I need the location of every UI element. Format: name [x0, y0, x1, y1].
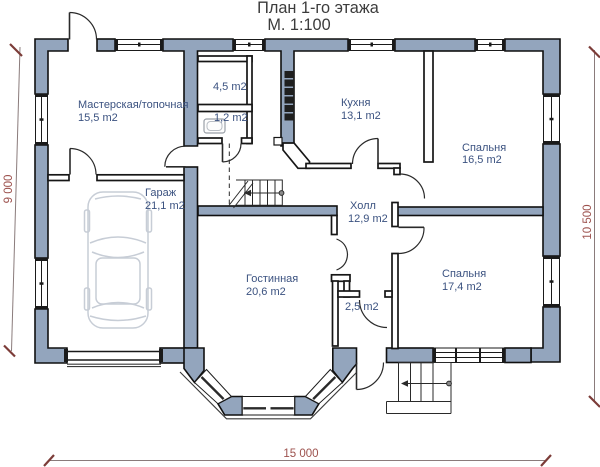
svg-text:15 000: 15 000	[283, 448, 318, 460]
svg-text:4,5 m2: 4,5 m2	[213, 81, 247, 93]
svg-text:М. 1:100: М. 1:100	[267, 16, 330, 34]
svg-text:16,5 m2: 16,5 m2	[462, 154, 502, 166]
svg-text:Гараж: Гараж	[145, 187, 177, 199]
svg-text:10 500: 10 500	[582, 204, 594, 239]
svg-text:Спальня: Спальня	[462, 142, 506, 154]
svg-text:20,6 m2: 20,6 m2	[246, 286, 286, 298]
svg-text:12,9 m2: 12,9 m2	[348, 213, 388, 225]
svg-text:Гостинная: Гостинная	[246, 273, 298, 285]
svg-text:21,1 m2: 21,1 m2	[145, 200, 185, 212]
svg-text:17,4 m2: 17,4 m2	[442, 281, 482, 293]
svg-text:15,5 m2: 15,5 m2	[78, 112, 118, 124]
svg-text:1,2 m2: 1,2 m2	[214, 112, 248, 124]
svg-text:Кухня: Кухня	[341, 97, 370, 109]
svg-text:Холл: Холл	[350, 200, 376, 212]
svg-text:2,5 m2: 2,5 m2	[345, 301, 379, 313]
svg-text:13,1 m2: 13,1 m2	[341, 110, 381, 122]
svg-text:Спальня: Спальня	[442, 268, 486, 280]
svg-text:Мастерская/топочная: Мастерская/топочная	[78, 99, 189, 111]
svg-text:9 000: 9 000	[3, 175, 15, 204]
svg-text:План 1-го этажа: План 1-го этажа	[257, 0, 380, 17]
